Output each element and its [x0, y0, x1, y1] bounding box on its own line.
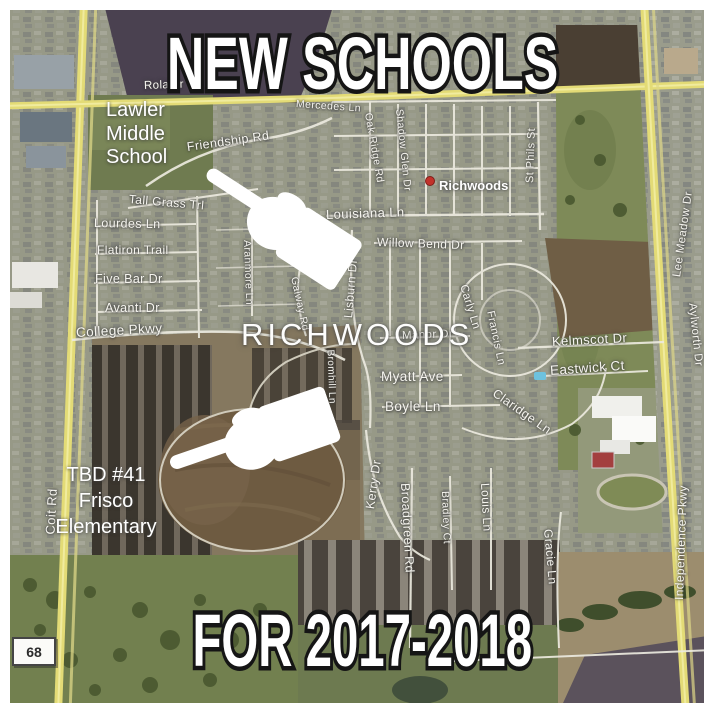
- street-label: Lourdes Ln: [94, 216, 161, 231]
- street-label: Louis Ln: [478, 483, 495, 532]
- street-label: Flatiron Trail: [97, 243, 169, 257]
- street-label: Myatt Ave: [381, 369, 444, 384]
- dirt-field-right: [545, 238, 656, 338]
- title-fill: NEW SCHOOLS: [167, 22, 558, 105]
- title-fill: FOR 2017-2018: [192, 599, 532, 682]
- annotation-line: Elementary: [48, 514, 164, 540]
- street-label: Willow Bend Dr: [377, 235, 465, 252]
- route-68-shield: 68: [12, 637, 56, 666]
- title-for-2017-2018: FOR 2017-2018 FOR 2017-2018: [192, 604, 532, 678]
- map-layer: RolaterFriendship RdTall Grass TrlLourde…: [10, 10, 704, 703]
- street-label: St Phils St: [524, 128, 538, 184]
- annotation-tbd-frisco-elementary: TBD #41 Frisco Elementary: [48, 462, 164, 540]
- annotation-line: TBD #41: [48, 462, 164, 488]
- annotation-lawler-middle-school: Lawler Middle School: [106, 99, 167, 170]
- tennis-courts: [592, 452, 614, 468]
- poi-label-richwoods: Richwoods: [439, 178, 508, 193]
- annotation-line: Lawler: [106, 99, 167, 123]
- annotated-satellite-map: { "titles": { "top": "NEW SCHOOLS", "bot…: [0, 0, 714, 714]
- annotation-line: Middle: [106, 123, 167, 147]
- red-dot-marker: [426, 177, 435, 186]
- annotation-line: School: [106, 146, 167, 170]
- plowed-field-topright: [556, 25, 650, 92]
- neighborhood-label: RICHWOODS: [241, 317, 473, 353]
- annotation-line: Frisco: [48, 488, 164, 514]
- running-track: [598, 475, 666, 509]
- map-viewport: RolaterFriendship RdTall Grass TrlLourde…: [10, 10, 704, 703]
- pool: [534, 372, 546, 380]
- street-label: Bradley Ct: [439, 491, 453, 544]
- title-new-schools: NEW SCHOOLS NEW SCHOOLS: [167, 27, 558, 101]
- street-label: Avanti Dr: [105, 301, 160, 315]
- street-label: Boyle Ln: [385, 399, 441, 414]
- street-label: Five Bar Dr: [95, 272, 163, 286]
